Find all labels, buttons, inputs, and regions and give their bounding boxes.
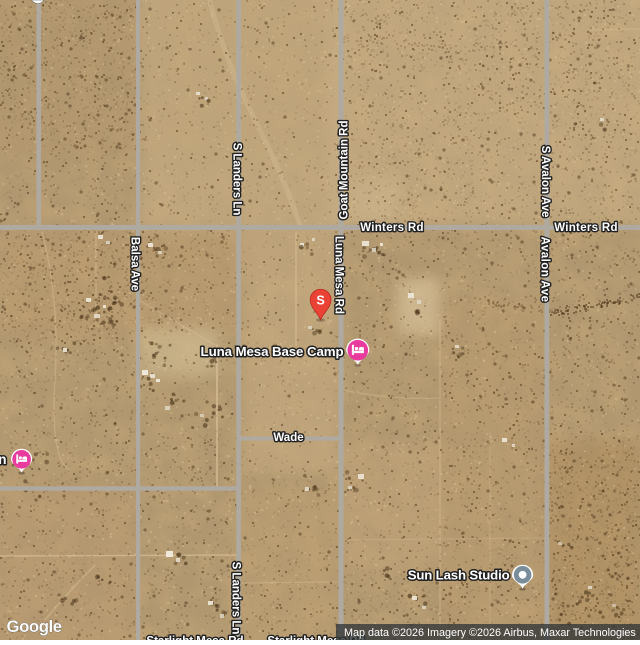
svg-text:S Landers Ln: S Landers Ln bbox=[231, 143, 243, 216]
svg-text:Goat Mountain Rd: Goat Mountain Rd bbox=[339, 120, 351, 219]
svg-text:S: S bbox=[316, 293, 324, 307]
svg-text:n: n bbox=[0, 452, 7, 467]
svg-text:Google: Google bbox=[7, 617, 62, 636]
svg-text:S Avalon Ave: S Avalon Ave bbox=[539, 146, 551, 218]
svg-text:Balsa Ave: Balsa Ave bbox=[129, 237, 141, 291]
svg-text:Map data ©2026 Imagery ©2026 A: Map data ©2026 Imagery ©2026 Airbus, Max… bbox=[344, 627, 636, 639]
svg-text:Avalon Ave: Avalon Ave bbox=[539, 237, 551, 303]
svg-text:Wade: Wade bbox=[273, 432, 303, 444]
svg-text:Sun Lash Studio: Sun Lash Studio bbox=[408, 568, 510, 583]
svg-text:S Landers Ln: S Landers Ln bbox=[230, 562, 242, 635]
svg-text:Winters Rd: Winters Rd bbox=[360, 222, 424, 234]
svg-text:Luna Mesa Base Camp: Luna Mesa Base Camp bbox=[201, 344, 344, 359]
svg-text:Luna Mesa Rd: Luna Mesa Rd bbox=[333, 236, 345, 314]
svg-text:Starlight Mesa Rd: Starlight Mesa Rd bbox=[146, 636, 243, 641]
svg-text:Winters Rd: Winters Rd bbox=[554, 222, 618, 234]
